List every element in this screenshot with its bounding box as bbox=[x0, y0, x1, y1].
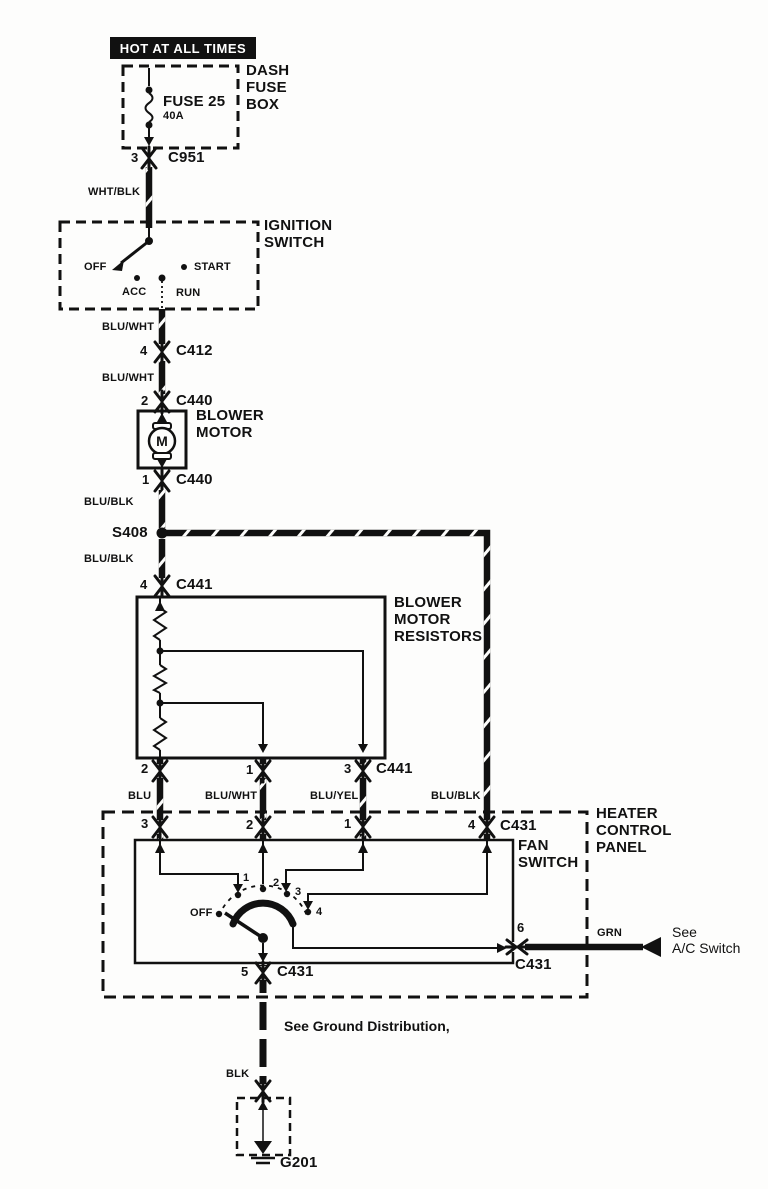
c431-row-name: C431 bbox=[500, 817, 537, 834]
c431-pin6-name: C431 bbox=[515, 956, 552, 973]
wire-label-blu-blk-2: BLU/BLK bbox=[84, 553, 134, 565]
feed-wire-wht-blk bbox=[142, 147, 156, 228]
connector-c441-pin1-icon bbox=[256, 760, 270, 782]
ignition-run-label: RUN bbox=[176, 287, 200, 299]
motor-letter: M bbox=[150, 433, 174, 449]
fuse-rating: 40A bbox=[163, 110, 184, 122]
ground-path bbox=[237, 962, 290, 1163]
connector-c431-pin2-icon bbox=[256, 816, 270, 838]
splice-s408-dot bbox=[157, 528, 168, 539]
connector-c441-pin3-icon bbox=[356, 760, 370, 782]
resistor-3 bbox=[154, 718, 166, 750]
c412-pin: 4 bbox=[140, 343, 147, 358]
fan-switch-label: FAN SWITCH bbox=[518, 838, 578, 872]
wiring-diagram-page: HOT AT ALL TIMES DASH FUSE BOX FUSE 25 4… bbox=[0, 0, 768, 1189]
ground-distribution-note: See Ground Distribution, bbox=[284, 1018, 450, 1034]
c431-pin5: 5 bbox=[241, 964, 248, 979]
fan-pos-off-label: OFF bbox=[190, 907, 213, 919]
connector-c412-icon bbox=[155, 341, 169, 363]
c441-row-pin1: 1 bbox=[246, 762, 253, 777]
switch-pivot bbox=[258, 933, 268, 943]
c441-row-pin2: 2 bbox=[141, 761, 148, 776]
resistor-1 bbox=[154, 608, 166, 640]
circuit-artwork bbox=[0, 0, 768, 1189]
wire-label-blu-yel: BLU/YEL bbox=[310, 790, 358, 802]
c440-bottom-name: C440 bbox=[176, 471, 213, 488]
connector-c440-bottom-icon bbox=[155, 470, 169, 492]
connector-c431-pin5-icon bbox=[256, 962, 270, 984]
c440-bottom-pin: 1 bbox=[142, 472, 149, 487]
wire-blu-wht-column bbox=[155, 309, 169, 413]
c441-main-name: C441 bbox=[176, 576, 213, 593]
c431-row-pin1: 1 bbox=[344, 816, 351, 831]
connector-c441-pin2-icon bbox=[153, 760, 167, 782]
offpage-arrow bbox=[641, 937, 661, 957]
dash-fuse-box-label: DASH FUSE BOX bbox=[246, 63, 289, 114]
ignition-acc-label: ACC bbox=[122, 286, 146, 298]
g201-name: G201 bbox=[280, 1154, 318, 1171]
c441-main-pin: 4 bbox=[140, 577, 147, 592]
blower-resistors-label: BLOWER MOTOR RESISTORS bbox=[394, 595, 482, 646]
c951-pin: 3 bbox=[131, 150, 138, 165]
fan-switch-box bbox=[135, 840, 513, 963]
c431-row-pin2: 2 bbox=[246, 817, 253, 832]
connector-c431-pin6-icon bbox=[506, 940, 528, 954]
blower-resistors-box bbox=[137, 597, 385, 758]
grn-wire-ac-switch bbox=[506, 937, 661, 957]
c951-name: C951 bbox=[168, 149, 205, 166]
c431-row-pin3: 3 bbox=[141, 816, 148, 831]
fan-pos-4-label: 4 bbox=[316, 906, 322, 918]
wire-label-blu-wht-3: BLU/WHT bbox=[205, 790, 257, 802]
wire-label-blu-blk-3: BLU/BLK bbox=[431, 790, 481, 802]
wire-label-grn: GRN bbox=[597, 927, 622, 939]
ignition-switch-label: IGNITION SWITCH bbox=[264, 218, 332, 252]
c431-pin5-name: C431 bbox=[277, 963, 314, 980]
c441-row-name: C441 bbox=[376, 760, 413, 777]
splice-s408-label: S408 bbox=[112, 524, 148, 541]
wire-label-wht-blk: WHT/BLK bbox=[88, 186, 140, 198]
c412-name: C412 bbox=[176, 342, 213, 359]
fan-pos-3-label: 3 bbox=[295, 886, 301, 898]
wire-blu-blk-column bbox=[155, 470, 487, 822]
c441-row-pin3: 3 bbox=[344, 761, 351, 776]
c431-pin6: 6 bbox=[517, 920, 524, 935]
ignition-off-label: OFF bbox=[84, 261, 107, 273]
ignition-start-label: START bbox=[194, 261, 231, 273]
wire-label-blk: BLK bbox=[226, 1068, 249, 1080]
connector-c431-pin4-icon bbox=[480, 816, 494, 838]
c431-row-pin4: 4 bbox=[468, 817, 475, 832]
power-banner: HOT AT ALL TIMES bbox=[110, 37, 256, 59]
wire-label-blu-blk-1: BLU/BLK bbox=[84, 496, 134, 508]
ac-switch-note: See A/C Switch bbox=[672, 924, 740, 956]
fuse-element bbox=[146, 93, 153, 122]
wire-label-blu-wht-2: BLU/WHT bbox=[102, 372, 154, 384]
connector-c441-main-icon bbox=[155, 575, 169, 597]
fuse-name: FUSE 25 bbox=[163, 93, 225, 110]
c440-top-pin: 2 bbox=[141, 393, 148, 408]
switch-wiper-arc bbox=[233, 903, 293, 924]
fan-pos-1-label: 1 bbox=[243, 872, 249, 884]
connector-c431-pin3-icon bbox=[153, 816, 167, 838]
connector-c431-pin1-icon bbox=[356, 816, 370, 838]
wire-label-blu-wht-1: BLU/WHT bbox=[102, 321, 154, 333]
resistor-2 bbox=[154, 665, 166, 693]
connector-c951-icon bbox=[142, 147, 156, 169]
wire-label-blu: BLU bbox=[128, 790, 151, 802]
heater-panel-label: HEATER CONTROL PANEL bbox=[596, 806, 672, 857]
fan-pos-2-label: 2 bbox=[273, 877, 279, 889]
blower-motor-label: BLOWER MOTOR bbox=[196, 408, 264, 442]
ground-symbol bbox=[254, 1141, 272, 1154]
